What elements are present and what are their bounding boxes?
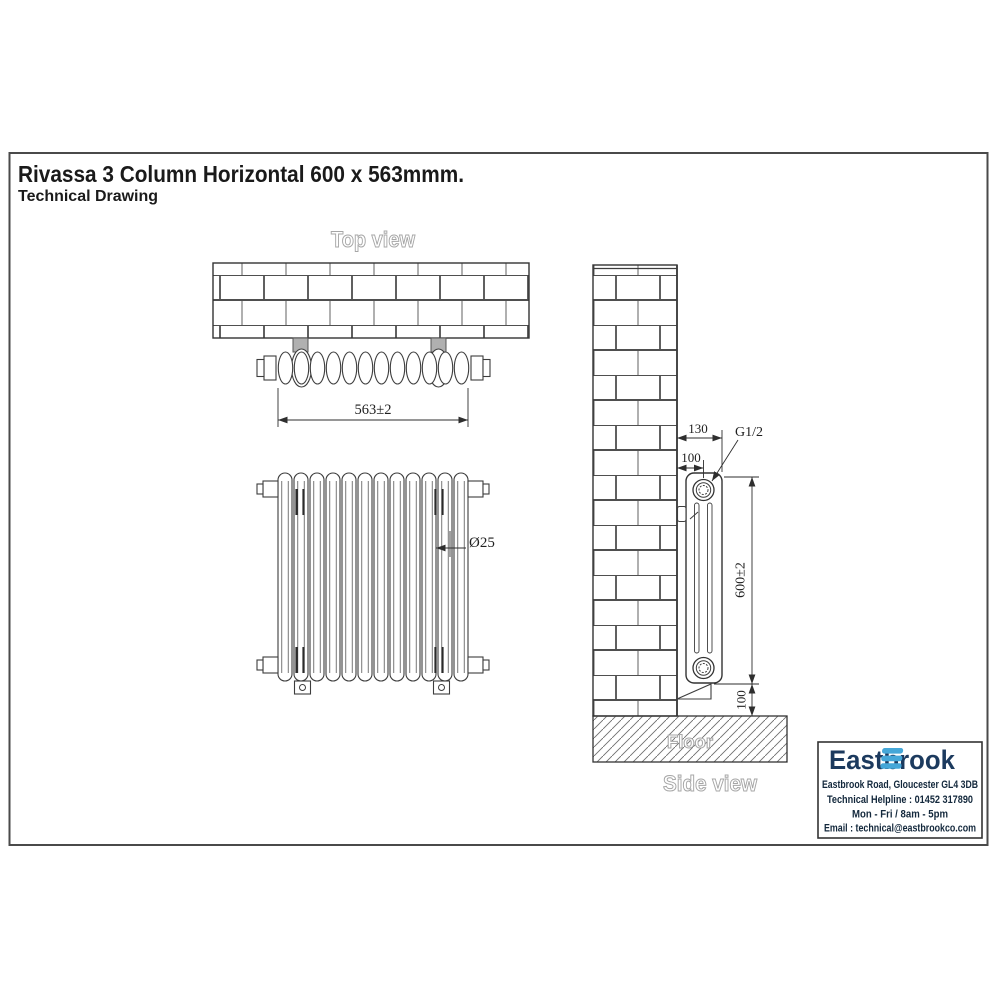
dim-depth-text: 130 (688, 421, 708, 436)
side-view-label: Side view (663, 771, 758, 796)
brand-email: Email : technical@eastbrookco.com (824, 823, 976, 835)
technical-drawing-canvas: Rivassa 3 Column Horizontal 600 x 563mmm… (0, 0, 1000, 1000)
brand-box: Eastbrook Eastbrook Road, Gloucester GL4… (818, 742, 982, 838)
top-view-label: Top view (331, 227, 416, 252)
dim-width-text: 563±2 (355, 402, 392, 418)
dim-diameter-text: Ø25 (469, 535, 495, 551)
wall-side (593, 265, 677, 716)
brand-address: Eastbrook Road, Gloucester GL4 3DB (822, 779, 978, 791)
wall-bracket-side (678, 507, 687, 522)
dim-connection-text: G1/2 (735, 425, 763, 440)
floor-label: Floor (667, 732, 713, 752)
pipe-bush-top (693, 480, 714, 501)
pipe-bush-bottom (693, 658, 714, 679)
dim-height-text: 600±2 (734, 562, 749, 598)
page-subtitle: Technical Drawing (18, 188, 158, 205)
eastbrook-waves-icon (880, 748, 903, 769)
dim-clearance-text: 100 (734, 690, 749, 710)
technical-drawing-page: Rivassa 3 Column Horizontal 600 x 563mmm… (0, 0, 1000, 1000)
dim-pipe-text: 100 (681, 450, 701, 465)
wall-plan (213, 263, 529, 338)
page-title: Rivassa 3 Column Horizontal 600 x 563mmm… (18, 161, 464, 187)
brand-helpline: Technical Helpline : 01452 317890 (827, 794, 973, 806)
brand-hours: Mon - Fri / 8am - 5pm (852, 809, 948, 821)
